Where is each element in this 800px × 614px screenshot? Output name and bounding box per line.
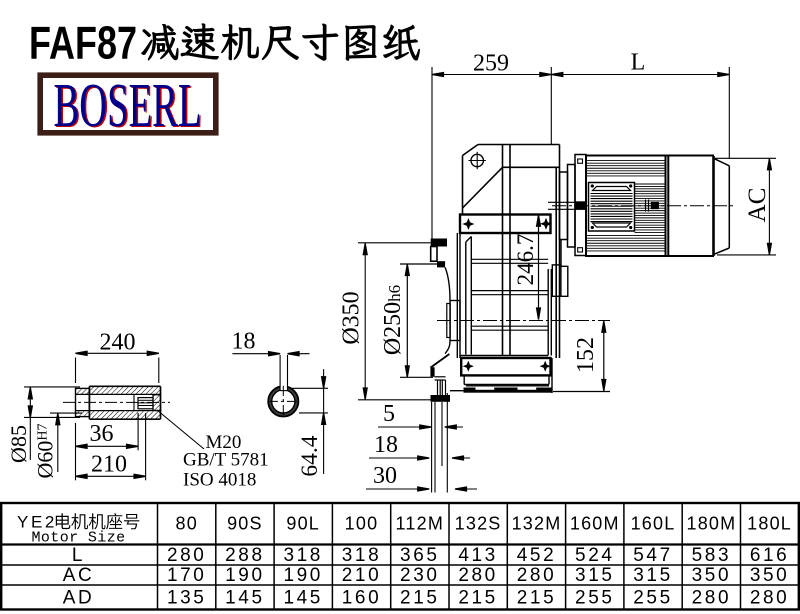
svg-text:280: 280 [692, 588, 732, 609]
svg-text:230: 230 [400, 565, 440, 586]
svg-text:GB/T 5781: GB/T 5781 [183, 450, 269, 471]
svg-text:350: 350 [692, 565, 732, 586]
svg-text:90S: 90S [227, 514, 263, 534]
svg-text:170: 170 [167, 565, 207, 586]
svg-text:280: 280 [517, 565, 557, 586]
svg-text:36: 36 [90, 421, 114, 447]
svg-text:152: 152 [573, 337, 599, 373]
svg-text:AC: AC [63, 565, 95, 586]
svg-text:190: 190 [225, 565, 265, 586]
svg-text:180L: 180L [747, 514, 792, 534]
svg-text:583: 583 [692, 545, 732, 566]
svg-text:145: 145 [225, 588, 265, 609]
svg-text:616: 616 [750, 545, 790, 566]
svg-text:210: 210 [91, 452, 127, 478]
svg-text:190: 190 [283, 565, 323, 586]
svg-text:452: 452 [517, 545, 557, 566]
svg-text:350: 350 [750, 565, 790, 586]
svg-text:L: L [631, 50, 646, 76]
svg-text:255: 255 [575, 588, 615, 609]
svg-text:288: 288 [225, 545, 265, 566]
svg-text:80: 80 [175, 514, 197, 534]
svg-text:318: 318 [342, 545, 382, 566]
svg-text:135: 135 [167, 588, 207, 609]
svg-text:132S: 132S [455, 514, 502, 534]
svg-text:AD: AD [63, 588, 95, 609]
svg-text:524: 524 [575, 545, 615, 566]
svg-text:ISO 4018: ISO 4018 [183, 470, 256, 491]
svg-text:210: 210 [342, 565, 382, 586]
svg-text:215: 215 [458, 588, 498, 609]
svg-text:Motor Size: Motor Size [31, 530, 125, 547]
svg-text:315: 315 [575, 565, 615, 586]
svg-text:365: 365 [400, 545, 440, 566]
svg-text:160M: 160M [570, 514, 620, 534]
svg-text:112M: 112M [396, 514, 445, 534]
svg-text:413: 413 [458, 545, 498, 566]
svg-text:132M: 132M [512, 514, 562, 534]
svg-text:FAF87: FAF87 [29, 17, 137, 69]
svg-text:Ø350: Ø350 [339, 291, 365, 344]
svg-text:100: 100 [345, 514, 379, 534]
svg-text:30: 30 [373, 463, 397, 489]
svg-text:18: 18 [374, 432, 398, 458]
svg-text:64.4: 64.4 [297, 435, 323, 476]
svg-text:255: 255 [633, 588, 673, 609]
svg-text:160: 160 [342, 588, 382, 609]
svg-text:90L: 90L [286, 514, 320, 534]
svg-text:Ø250h6: Ø250h6 [380, 285, 406, 355]
svg-text:18: 18 [232, 329, 256, 355]
svg-text:L: L [72, 545, 85, 566]
svg-text:215: 215 [517, 588, 557, 609]
svg-text:280: 280 [458, 565, 498, 586]
svg-text:160L: 160L [631, 514, 676, 534]
svg-text:Ø85: Ø85 [6, 425, 31, 463]
svg-text:318: 318 [283, 545, 323, 566]
svg-text:180M: 180M [686, 514, 736, 534]
svg-text:246.7: 246.7 [513, 234, 538, 286]
svg-text:240: 240 [100, 330, 136, 356]
svg-text:AC: AC [744, 188, 771, 223]
svg-text:215: 215 [400, 588, 440, 609]
svg-text:280: 280 [750, 588, 790, 609]
svg-text:5: 5 [383, 401, 395, 427]
svg-text:Ø60H7: Ø60H7 [33, 423, 58, 478]
svg-text:BOSERL: BOSERL [54, 72, 202, 140]
svg-text:547: 547 [633, 545, 673, 566]
svg-text:145: 145 [283, 588, 323, 609]
svg-text:280: 280 [167, 545, 207, 566]
svg-text:315: 315 [633, 565, 673, 586]
svg-text:259: 259 [473, 51, 509, 77]
